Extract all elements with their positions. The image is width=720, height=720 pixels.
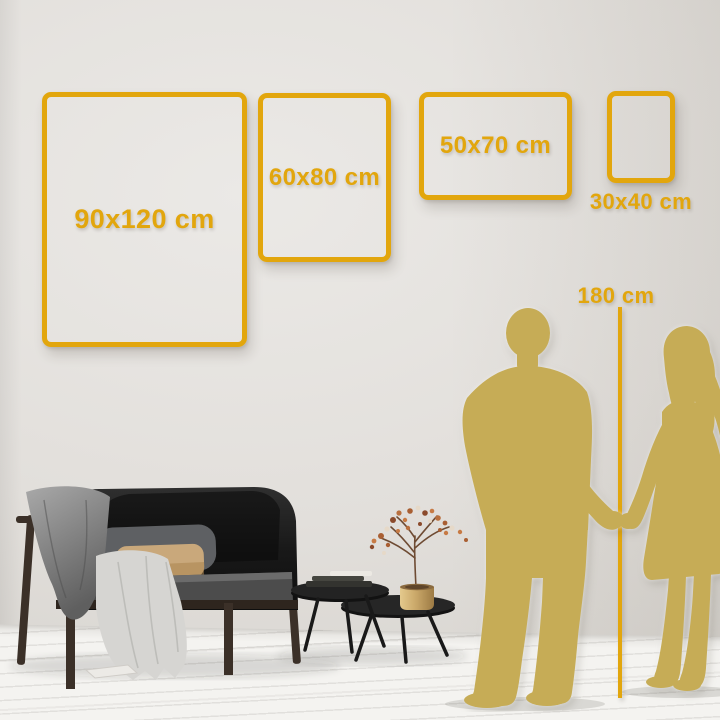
size-frame-50x70: 50x70 cm: [419, 92, 572, 200]
size-label-50x70: 50x70 cm: [440, 132, 551, 160]
man-silhouette: [463, 308, 624, 708]
book-white: [330, 571, 372, 576]
size-label-30x40: 30x40 cm: [561, 189, 720, 215]
size-label-90x120: 90x120 cm: [74, 204, 214, 235]
sofa-rear-leg: [17, 515, 35, 665]
size-guide-scene: 90x120 cm 60x80 cm 50x70 cm 30x40 cm 180…: [0, 0, 720, 720]
size-frame-30x40: [607, 91, 675, 183]
size-frame-90x120: 90x120 cm: [42, 92, 247, 347]
vase-opening: [405, 585, 429, 589]
woman-silhouette: [619, 326, 720, 691]
size-frame-60x80: 60x80 cm: [258, 93, 391, 262]
couple-silhouette: [440, 300, 720, 712]
brass-vase: [400, 587, 434, 610]
book-stack-dark: [306, 581, 372, 587]
size-label-60x80: 60x80 cm: [269, 164, 380, 192]
sofa-front-leg-right: [224, 603, 233, 675]
book-middle: [312, 576, 364, 581]
woman-floor-shadow: [622, 686, 720, 698]
